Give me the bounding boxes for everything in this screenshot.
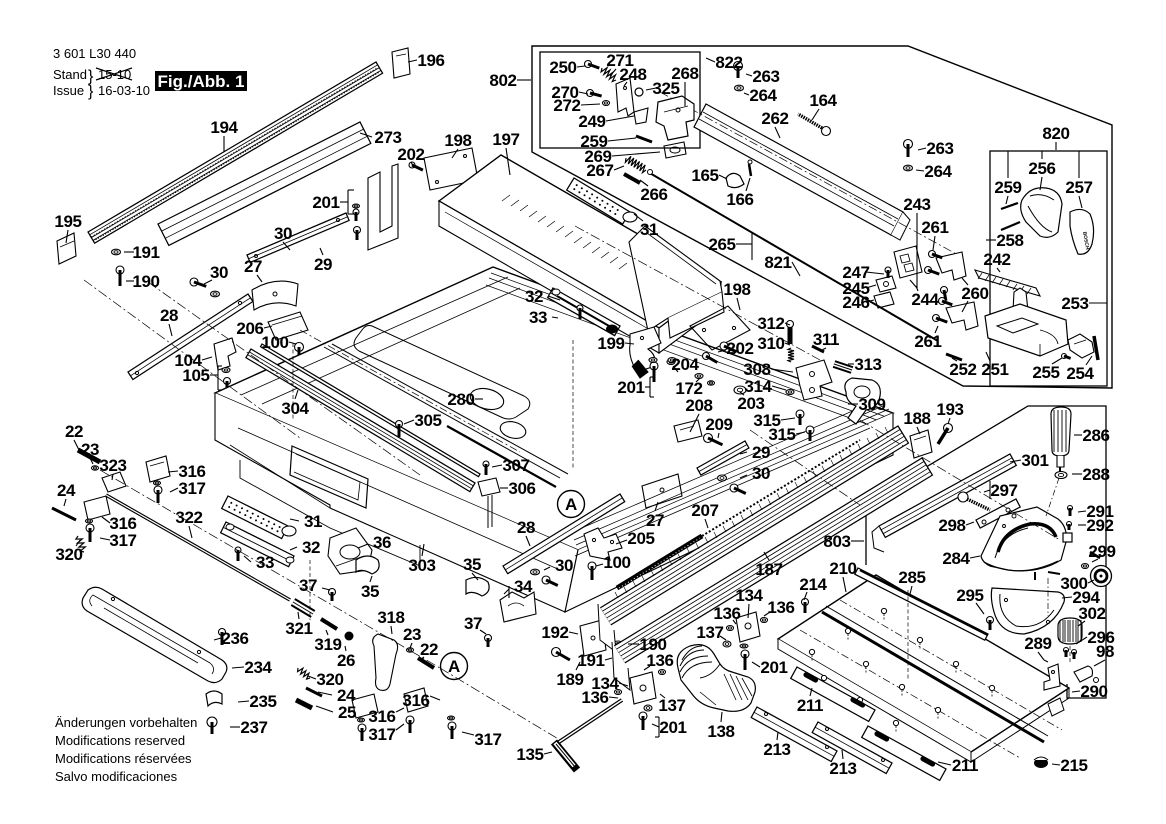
svg-text:301: 301	[1021, 451, 1048, 470]
svg-text:214: 214	[799, 575, 827, 594]
svg-text:803: 803	[823, 532, 850, 551]
svg-text:36: 36	[373, 533, 391, 552]
svg-text:317: 317	[474, 730, 501, 749]
svg-text:206: 206	[236, 319, 263, 338]
svg-text:136: 136	[767, 598, 794, 617]
svg-text:285: 285	[898, 568, 925, 587]
svg-text:30: 30	[210, 263, 228, 282]
svg-text:202: 202	[397, 145, 424, 164]
svg-text:}: }	[88, 83, 94, 100]
svg-text:236: 236	[221, 629, 248, 648]
svg-text:263: 263	[752, 67, 779, 86]
svg-text:201: 201	[617, 378, 644, 397]
svg-text:28: 28	[517, 518, 535, 537]
svg-text:32: 32	[525, 287, 543, 306]
svg-text:250: 250	[549, 58, 576, 77]
svg-text:100: 100	[261, 333, 288, 352]
svg-text:30: 30	[274, 224, 292, 243]
svg-text:211: 211	[952, 756, 978, 775]
svg-text:31: 31	[304, 512, 322, 531]
svg-text:199: 199	[597, 334, 624, 353]
svg-text:138: 138	[707, 722, 734, 741]
svg-text:260: 260	[961, 284, 988, 303]
svg-text:264: 264	[924, 162, 952, 181]
svg-text:Modifications reserved: Modifications reserved	[55, 733, 185, 748]
svg-text:207: 207	[691, 501, 718, 520]
svg-text:195: 195	[54, 212, 81, 231]
svg-text:312: 312	[757, 314, 784, 333]
svg-text:253: 253	[1061, 294, 1088, 313]
svg-text:136: 136	[581, 688, 608, 707]
svg-text:325: 325	[652, 79, 679, 98]
svg-text:165: 165	[691, 166, 718, 185]
svg-text:Fig./Abb. 1: Fig./Abb. 1	[158, 72, 245, 91]
svg-text:296: 296	[1087, 628, 1114, 647]
svg-text:255: 255	[1032, 363, 1059, 382]
svg-text:242: 242	[983, 250, 1010, 269]
svg-text:317: 317	[178, 479, 205, 498]
svg-text:197: 197	[492, 130, 519, 149]
svg-text:261: 261	[921, 218, 948, 237]
svg-text:201: 201	[760, 658, 787, 677]
svg-text:246: 246	[842, 293, 869, 312]
svg-text:105: 105	[182, 366, 209, 385]
svg-text:210: 210	[829, 559, 856, 578]
svg-text:187: 187	[755, 560, 782, 579]
svg-text:802: 802	[489, 71, 516, 90]
svg-text:252: 252	[949, 360, 976, 379]
svg-text:29: 29	[752, 443, 770, 462]
svg-text:164: 164	[809, 91, 837, 110]
svg-text:323: 323	[99, 456, 126, 475]
svg-text:317: 317	[109, 531, 136, 550]
svg-text:3 601 L30 440: 3 601 L30 440	[53, 46, 136, 61]
svg-text:820: 820	[1042, 124, 1069, 143]
svg-text:211: 211	[797, 696, 823, 715]
svg-text:305: 305	[414, 411, 441, 430]
svg-text:318: 318	[377, 608, 404, 627]
svg-text:310: 310	[757, 334, 784, 353]
svg-text:30: 30	[752, 464, 770, 483]
svg-text:29: 29	[314, 255, 332, 274]
svg-text:315: 315	[768, 425, 795, 444]
svg-text:263: 263	[926, 139, 953, 158]
svg-text:213: 213	[763, 740, 790, 759]
svg-text:Salvo modificaciones: Salvo modificaciones	[55, 769, 178, 784]
svg-text:321: 321	[285, 619, 312, 638]
svg-text:205: 205	[627, 529, 654, 548]
svg-text:32: 32	[302, 538, 320, 557]
svg-text:209: 209	[705, 415, 732, 434]
svg-text:234: 234	[244, 658, 272, 677]
svg-text:201: 201	[312, 193, 339, 212]
svg-text:27: 27	[244, 257, 262, 276]
svg-text:208: 208	[685, 396, 712, 415]
svg-text:136: 136	[646, 651, 673, 670]
svg-text:215: 215	[1060, 756, 1087, 775]
svg-text:822: 822	[715, 53, 742, 72]
svg-text:316: 316	[402, 691, 429, 710]
svg-text:192: 192	[541, 623, 568, 642]
svg-text:298: 298	[938, 516, 965, 535]
svg-text:258: 258	[996, 231, 1023, 250]
svg-text:248: 248	[619, 65, 646, 84]
svg-text:33: 33	[529, 308, 547, 327]
svg-text:243: 243	[903, 195, 930, 214]
svg-text:27: 27	[646, 511, 664, 530]
svg-text:261: 261	[914, 332, 941, 351]
svg-text:297: 297	[990, 481, 1017, 500]
svg-text:299: 299	[1088, 542, 1115, 561]
svg-text:265: 265	[708, 235, 735, 254]
svg-text:316: 316	[368, 707, 395, 726]
svg-text:264: 264	[749, 86, 777, 105]
svg-text:34: 34	[514, 577, 533, 596]
svg-text:137: 137	[658, 696, 685, 715]
svg-text:198: 198	[444, 131, 471, 150]
svg-text:194: 194	[210, 118, 238, 137]
svg-text:300: 300	[1060, 574, 1087, 593]
svg-text:193: 193	[936, 400, 963, 419]
svg-text:259: 259	[580, 132, 607, 151]
svg-text:320: 320	[55, 545, 82, 564]
svg-text:23: 23	[81, 440, 99, 459]
svg-text:295: 295	[956, 586, 983, 605]
svg-text:256: 256	[1028, 159, 1055, 178]
svg-text:286: 286	[1082, 426, 1109, 445]
svg-text:190: 190	[132, 272, 159, 291]
svg-text:166: 166	[726, 190, 753, 209]
svg-text:280: 280	[447, 390, 474, 409]
svg-text:201: 201	[659, 718, 686, 737]
svg-text:A: A	[448, 657, 460, 676]
svg-text:191: 191	[132, 243, 159, 262]
svg-text:136: 136	[713, 604, 740, 623]
svg-text:137: 137	[696, 623, 723, 642]
svg-text:24: 24	[57, 481, 76, 500]
svg-text:304: 304	[281, 399, 309, 418]
svg-text:33: 33	[256, 553, 274, 572]
svg-text:35: 35	[463, 555, 481, 574]
svg-text:313: 313	[854, 355, 881, 374]
svg-text:307: 307	[502, 456, 529, 475]
svg-text:188: 188	[903, 409, 930, 428]
svg-text:28: 28	[160, 306, 178, 325]
svg-text:100: 100	[603, 553, 630, 572]
svg-text:244: 244	[911, 290, 939, 309]
svg-text:Stand: Stand	[53, 67, 87, 82]
svg-text:257: 257	[1065, 178, 1092, 197]
svg-text:311: 311	[813, 330, 839, 349]
svg-text:196: 196	[417, 51, 444, 70]
svg-text:254: 254	[1066, 364, 1094, 383]
svg-text:25: 25	[338, 703, 356, 722]
svg-text:259: 259	[994, 178, 1021, 197]
svg-text:306: 306	[508, 479, 535, 498]
svg-text:213: 213	[829, 759, 856, 778]
svg-text:291: 291	[1086, 502, 1113, 521]
svg-text:249: 249	[578, 112, 605, 131]
svg-text:317: 317	[368, 725, 395, 744]
svg-text:309: 309	[858, 395, 885, 414]
svg-text:30: 30	[555, 556, 573, 575]
svg-text:37: 37	[464, 614, 482, 633]
svg-text:314: 314	[744, 377, 772, 396]
svg-text:135: 135	[516, 745, 543, 764]
svg-text:22: 22	[65, 422, 83, 441]
svg-text:189: 189	[556, 670, 583, 689]
svg-text:23: 23	[403, 625, 421, 644]
svg-text:284: 284	[942, 549, 970, 568]
svg-text:237: 237	[240, 718, 267, 737]
svg-text:A: A	[565, 495, 577, 514]
svg-text:266: 266	[640, 185, 667, 204]
svg-text:821: 821	[764, 253, 791, 272]
svg-text:322: 322	[175, 508, 202, 527]
svg-text:251: 251	[981, 360, 1008, 379]
svg-text:22: 22	[420, 640, 438, 659]
svg-text:198: 198	[723, 280, 750, 299]
svg-text:262: 262	[761, 109, 788, 128]
svg-text:289: 289	[1024, 634, 1051, 653]
svg-text:270: 270	[551, 83, 578, 102]
svg-text:204: 204	[671, 355, 699, 374]
svg-text:191: 191	[577, 651, 604, 670]
svg-text:26: 26	[337, 651, 355, 670]
svg-text:235: 235	[249, 692, 276, 711]
svg-text:290: 290	[1080, 682, 1107, 701]
svg-text:16-03-10: 16-03-10	[98, 83, 150, 98]
svg-text:Modifications réservées: Modifications réservées	[55, 751, 192, 766]
svg-text:202: 202	[726, 339, 753, 358]
svg-text:31: 31	[640, 220, 658, 239]
svg-text:303: 303	[408, 556, 435, 575]
svg-text:288: 288	[1082, 465, 1109, 484]
svg-text:37: 37	[299, 576, 317, 595]
svg-text:134: 134	[735, 586, 763, 605]
svg-text:Änderungen vorbehalten: Änderungen vorbehalten	[55, 715, 197, 730]
svg-text:35: 35	[361, 582, 379, 601]
svg-text:Issue: Issue	[53, 83, 84, 98]
